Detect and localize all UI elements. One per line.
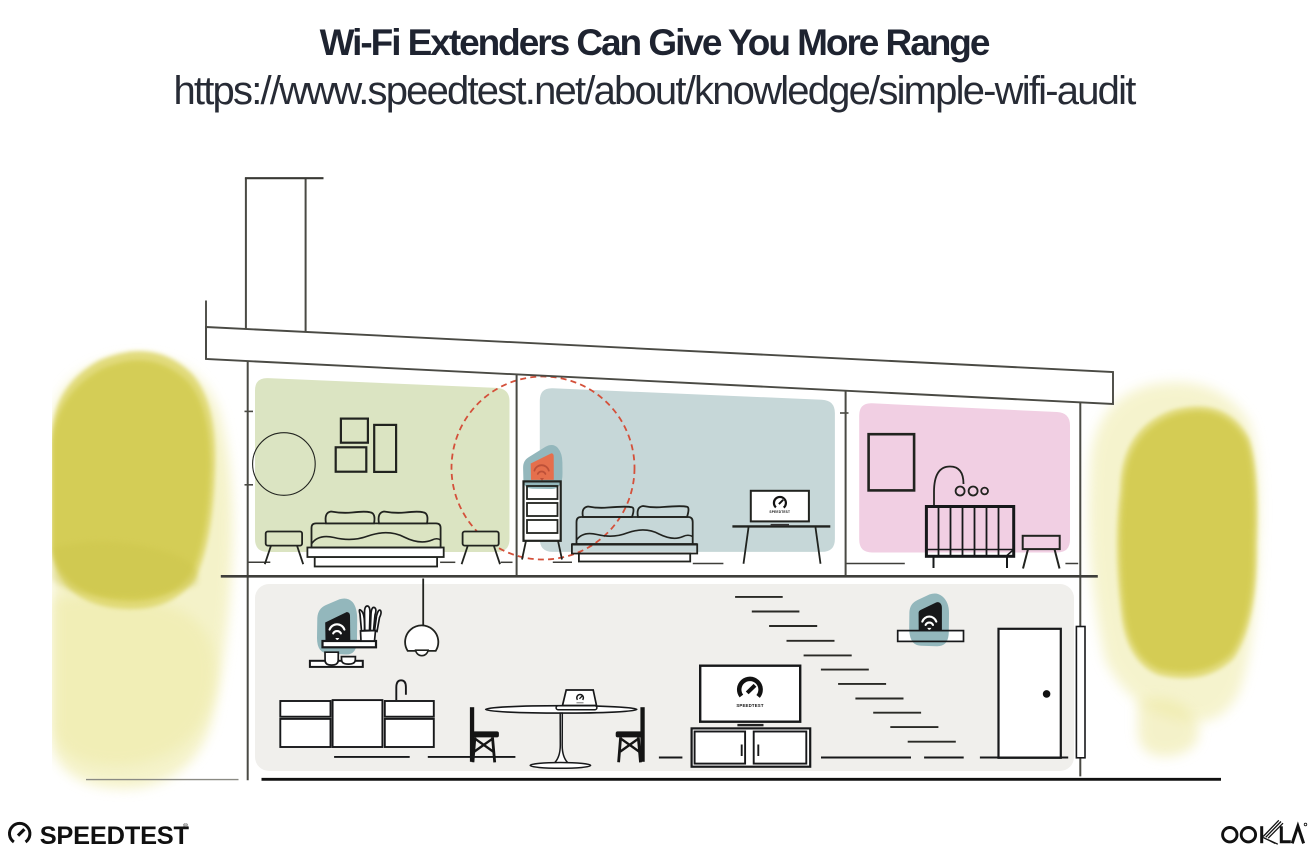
svg-text:SPEEDTEST: SPEEDTEST <box>769 510 790 514</box>
svg-text:®: ® <box>183 823 189 831</box>
svg-text:SPEEDTEST: SPEEDTEST <box>736 703 764 708</box>
svg-text:SPEEDTEST: SPEEDTEST <box>40 822 190 850</box>
